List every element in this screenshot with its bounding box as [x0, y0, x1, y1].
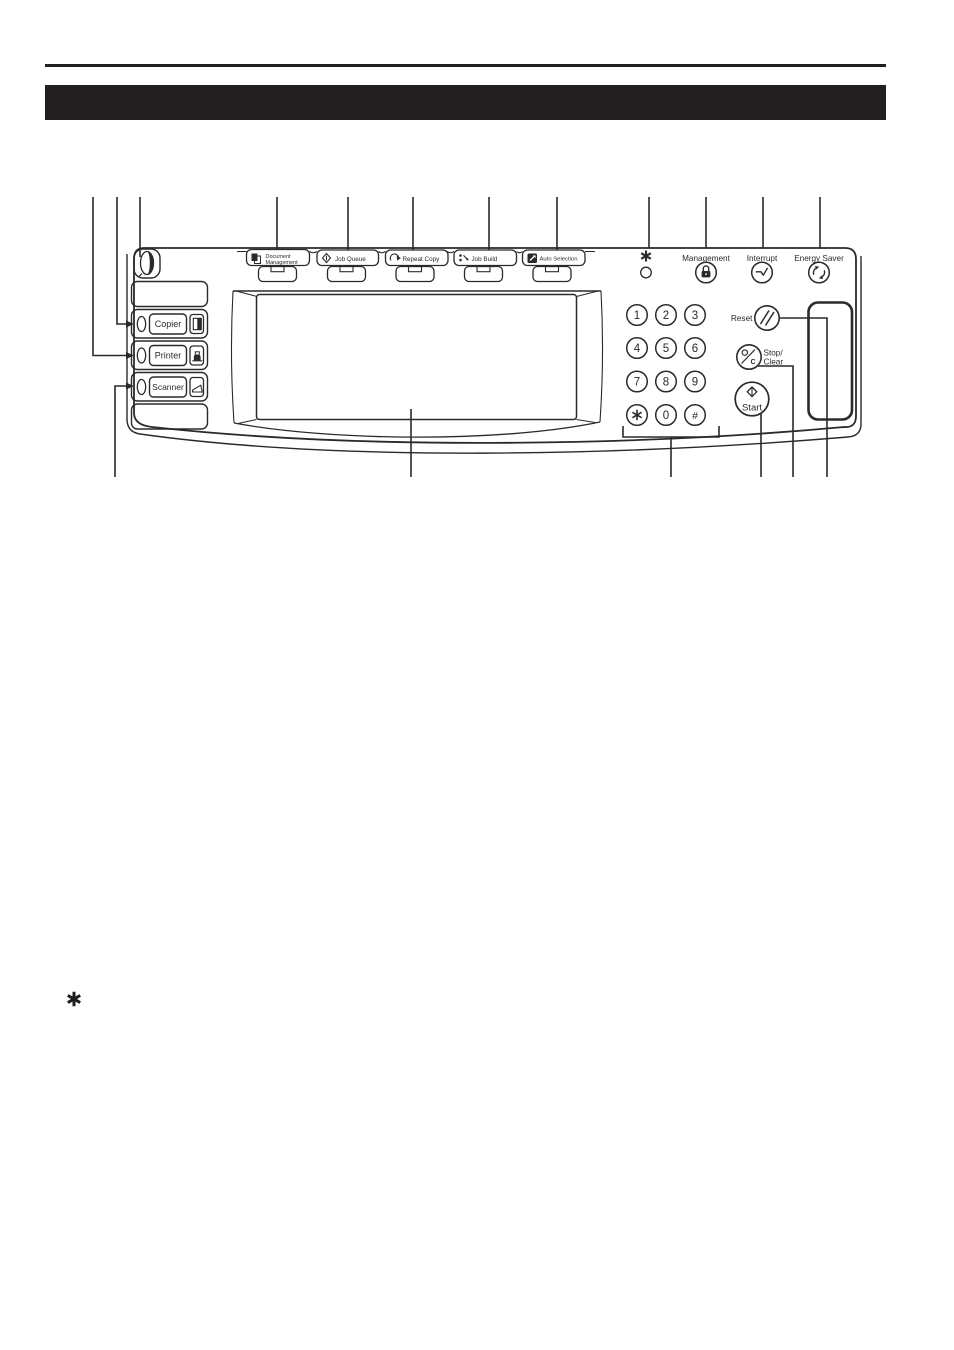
- control-panel-diagram: Copier Printer: [0, 0, 954, 500]
- reset-label: Reset: [731, 313, 753, 323]
- callout-copier-led: [117, 197, 126, 324]
- asterisk-led: [641, 267, 652, 278]
- manual-page: Copier Printer: [0, 0, 954, 1350]
- auto-selection-label: Auto Selection: [540, 257, 578, 263]
- printer-icon: [192, 352, 202, 361]
- callout-keypad-bracket: [623, 426, 719, 477]
- stop-clear-key: [737, 345, 761, 369]
- reset-icon: [761, 311, 775, 326]
- touch-screen-display: [257, 295, 577, 420]
- svg-text:3: 3: [692, 310, 698, 322]
- auto-selection-icon: [528, 254, 538, 264]
- job-build-icon: [459, 254, 468, 261]
- copier-button-label: Copier: [155, 319, 182, 329]
- mode-key-copier: Copier: [132, 310, 208, 339]
- document-management-label-line2: Management: [266, 260, 299, 266]
- energy-saver-key: Energy Saver: [794, 254, 844, 283]
- svg-text:8: 8: [663, 377, 669, 389]
- touch-panel: [231, 291, 602, 437]
- svg-text:7: 7: [634, 377, 640, 389]
- energy-saver-icon: [813, 266, 824, 279]
- scanner-icon: [193, 385, 203, 392]
- svg-text:9: 9: [692, 377, 698, 389]
- callout-lines: [93, 197, 827, 477]
- callout-scanner-led: [115, 386, 126, 477]
- numeric-keypad: 1 2 3 4 5 6 7 8 9 0 #: [627, 305, 706, 426]
- interrupt-key: Interrupt: [747, 254, 778, 283]
- asterisk-indicator: [641, 251, 652, 278]
- copier-icon: [193, 318, 201, 329]
- repeat-copy-icon: [390, 254, 401, 261]
- printer-indicator-led: [137, 348, 145, 363]
- utility-key-row: Management Interrupt Energy Saver: [641, 251, 844, 283]
- document-management-key: [259, 267, 297, 282]
- callout-stop-clear-key: [758, 366, 793, 477]
- control-keys: Reset C Stop/ Clear Start: [731, 306, 784, 416]
- display-contrast-dial: [134, 249, 160, 278]
- function-keys: [259, 267, 572, 282]
- repeat-copy-label: Repeat Copy: [403, 256, 441, 263]
- star-icon: [632, 410, 641, 421]
- svg-text:1: 1: [634, 310, 640, 322]
- interrupt-icon: [756, 268, 768, 275]
- right-key-slot: [809, 303, 853, 420]
- scanner-button-label: Scanner: [152, 382, 184, 392]
- blank-key-slot-top: [132, 282, 208, 307]
- document-management-icon: [252, 254, 261, 264]
- hash-icon: #: [692, 410, 698, 422]
- svg-text:4: 4: [634, 343, 641, 355]
- management-key: Management: [682, 254, 731, 283]
- svg-text:5: 5: [663, 343, 669, 355]
- svg-text:2: 2: [663, 310, 669, 322]
- auto-selection-key: [533, 267, 571, 282]
- repeat-copy-key: [396, 267, 434, 282]
- printer-button-label: Printer: [155, 351, 182, 361]
- start-icon: [747, 387, 757, 397]
- job-queue-icon: [323, 254, 331, 263]
- stop-label-line2: Clear: [764, 358, 784, 367]
- mode-key-scanner: Scanner: [132, 373, 208, 402]
- callout-printer-led: [93, 197, 126, 356]
- stop-clear-icon: C: [742, 350, 756, 367]
- function-key-strip: Document Management Job Queue Repeat Cop…: [237, 250, 595, 282]
- panel-body: [127, 248, 861, 453]
- svg-text:6: 6: [692, 343, 698, 355]
- key-star: [627, 405, 648, 426]
- document-management-label-line1: Document: [266, 254, 292, 260]
- svg-text:0: 0: [663, 410, 669, 422]
- footnote-asterisk-icon: [66, 991, 82, 1007]
- mode-key-printer: Printer: [132, 341, 208, 370]
- job-queue-key: [328, 267, 366, 282]
- lock-icon: [702, 266, 711, 278]
- job-build-label: Job Build: [472, 256, 498, 263]
- reset-key: [755, 306, 779, 330]
- scanner-indicator-led: [137, 380, 145, 395]
- dial-housing: [134, 249, 160, 278]
- job-queue-label: Job Queue: [335, 256, 366, 263]
- job-build-key: [465, 267, 503, 282]
- svg-text:C: C: [750, 359, 755, 366]
- stop-label-line1: Stop/: [764, 349, 784, 358]
- mode-key-column: Copier Printer: [132, 249, 208, 429]
- copier-indicator-led: [137, 317, 145, 332]
- asterisk-icon: [641, 251, 651, 262]
- callout-reset-key: [780, 318, 828, 477]
- start-label: Start: [742, 403, 762, 414]
